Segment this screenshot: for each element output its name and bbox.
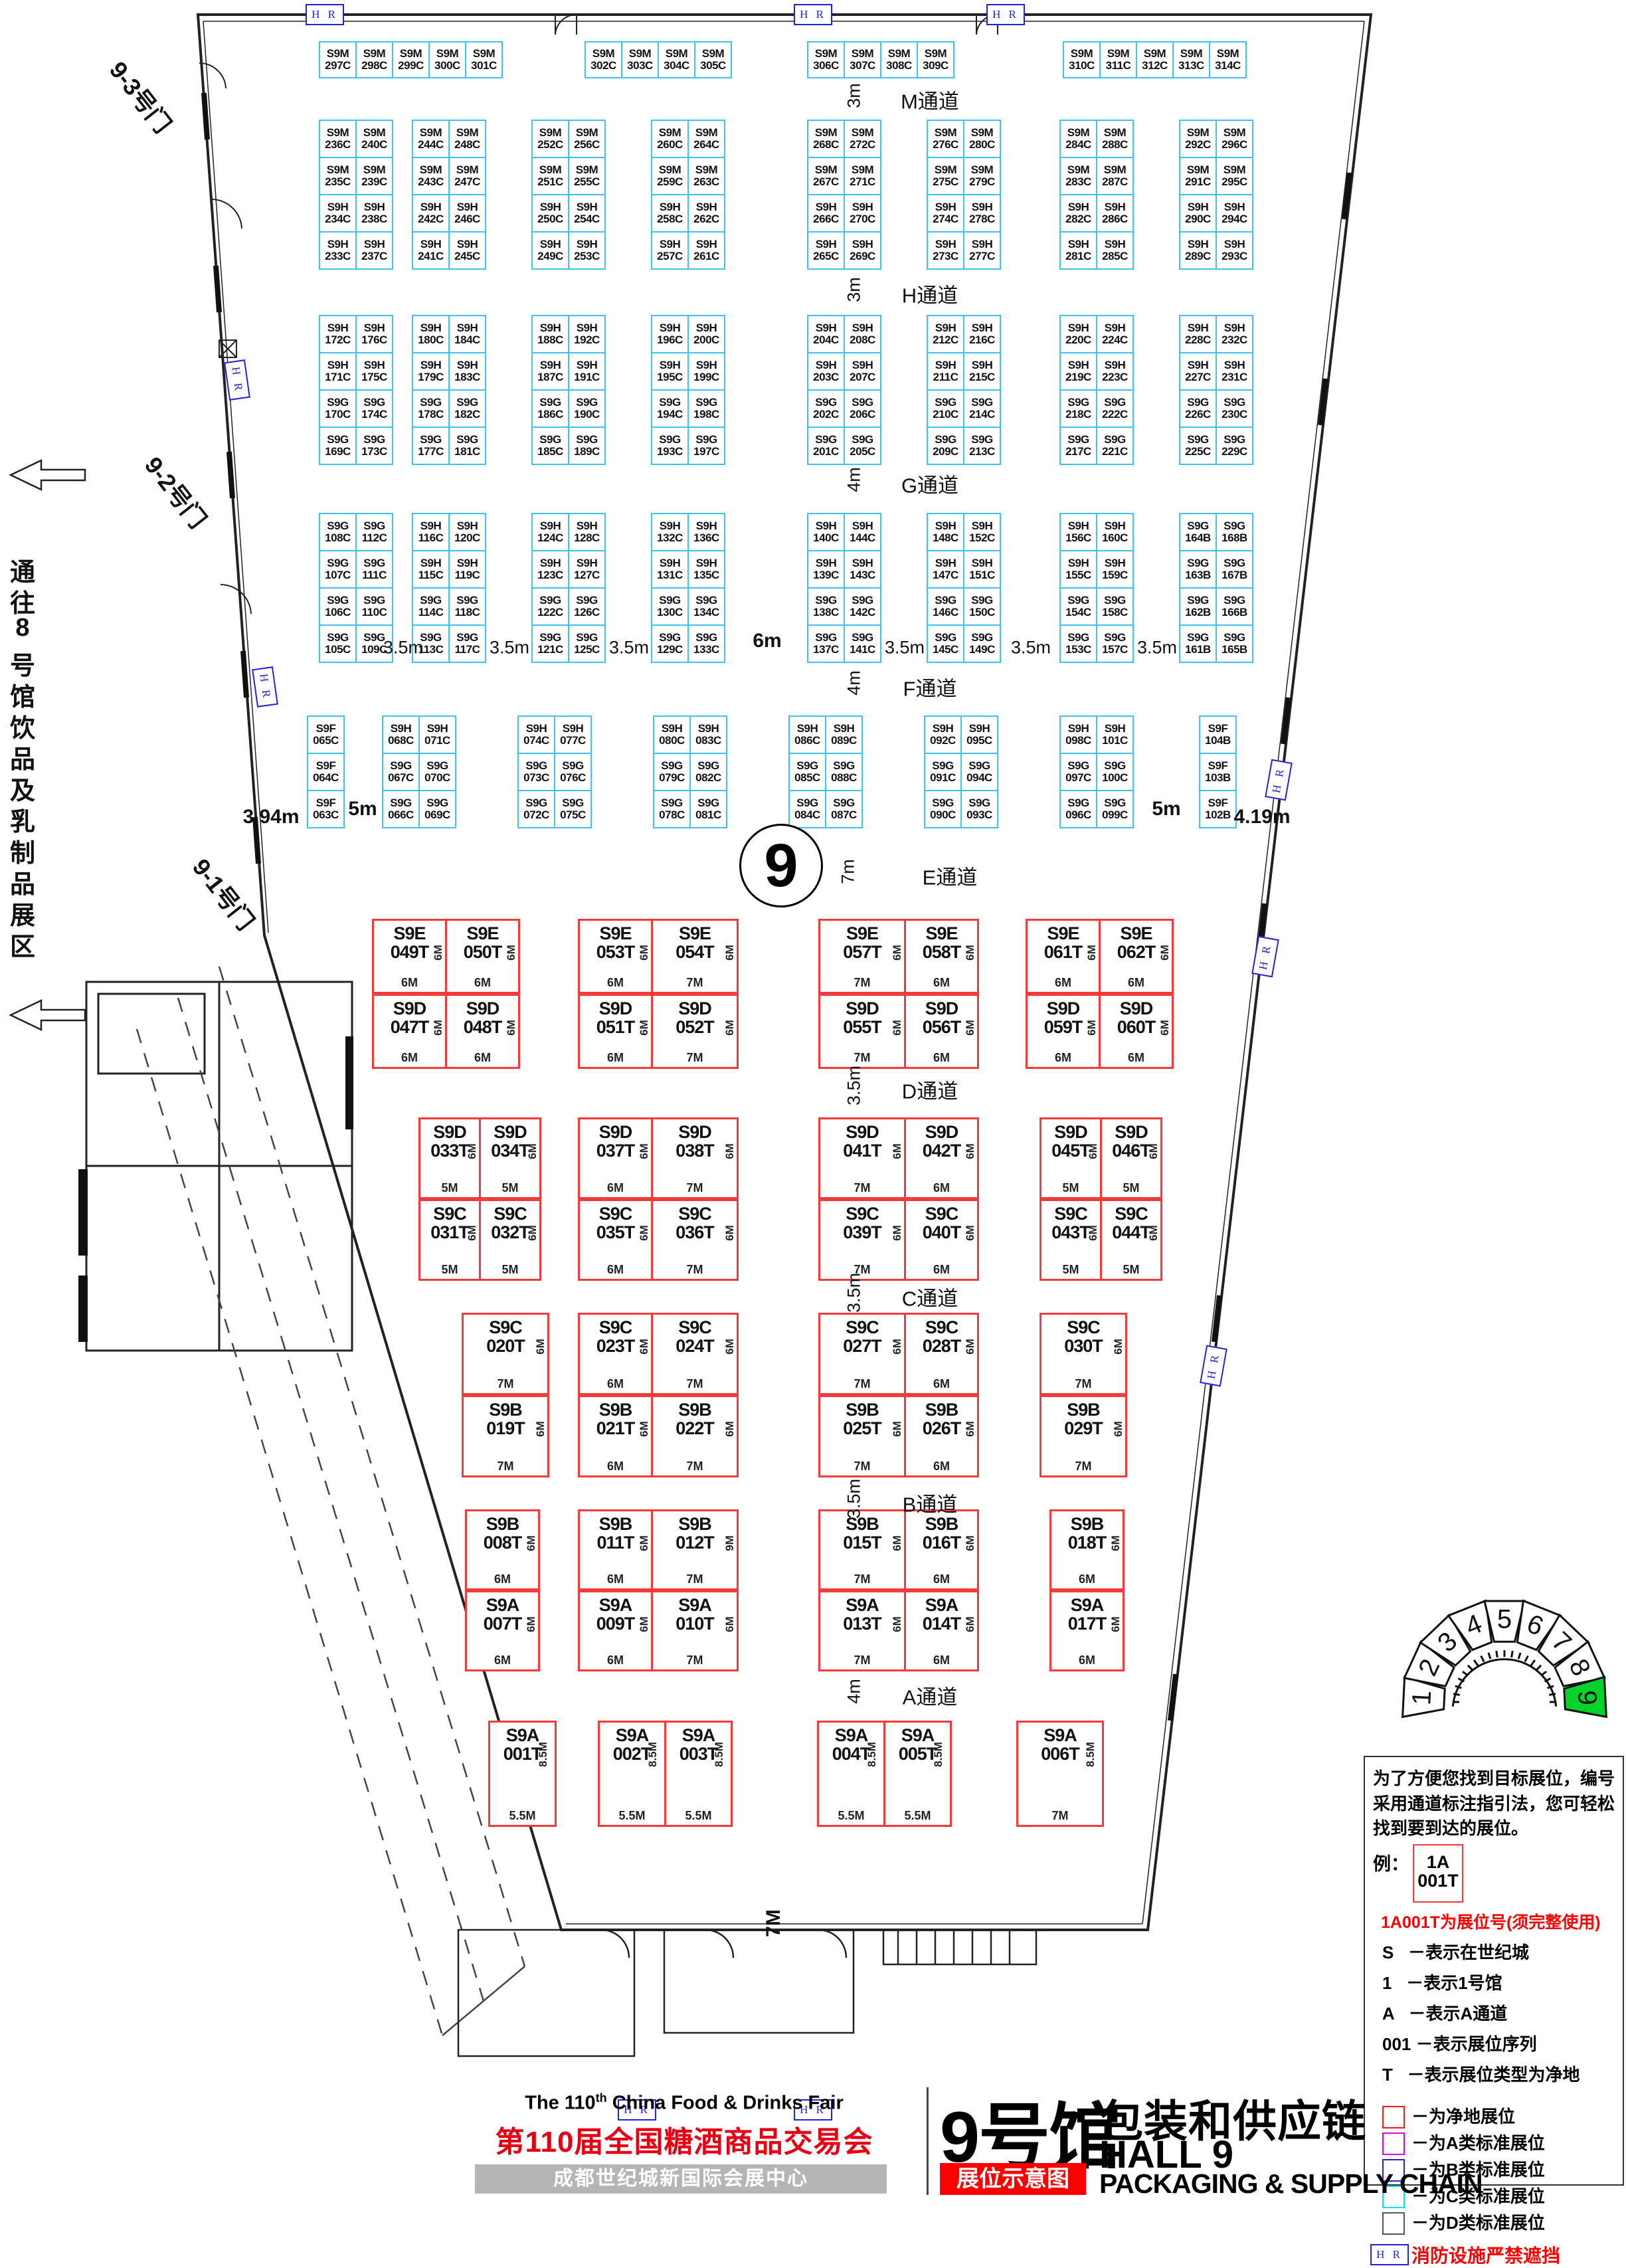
booth[interactable]: S9H180C bbox=[412, 315, 450, 353]
booth[interactable]: S9G067C bbox=[382, 753, 420, 791]
booth[interactable]: S9G087C bbox=[825, 790, 863, 828]
booth[interactable]: S9M312C bbox=[1136, 41, 1174, 78]
booth[interactable]: S9A009T6M6M bbox=[578, 1590, 653, 1671]
booth[interactable]: S9G142C bbox=[844, 587, 881, 626]
booth[interactable]: S9D045T6M5M bbox=[1039, 1117, 1102, 1199]
booth[interactable]: S9H262C bbox=[687, 194, 725, 233]
booth[interactable]: S9G189C bbox=[568, 426, 606, 465]
booth[interactable]: S9F064C bbox=[307, 753, 345, 791]
booth[interactable]: S9H257C bbox=[651, 231, 689, 270]
booth[interactable]: S9H074C bbox=[517, 715, 555, 754]
booth[interactable]: S9D059T6M6M bbox=[1026, 994, 1101, 1069]
booth[interactable]: S9M296C bbox=[1216, 120, 1253, 158]
booth[interactable]: S9M271C bbox=[844, 157, 881, 195]
booth[interactable]: S9G194C bbox=[651, 389, 689, 428]
booth[interactable]: S9G075C bbox=[554, 790, 592, 828]
booth[interactable]: S9H273C bbox=[927, 231, 964, 270]
booth[interactable]: S9B019T6M7M bbox=[462, 1395, 549, 1477]
booth[interactable]: S9G157C bbox=[1096, 624, 1134, 663]
booth[interactable]: S9G110C bbox=[355, 587, 393, 626]
booth[interactable]: S9H116C bbox=[412, 513, 450, 551]
booth[interactable]: S9H277C bbox=[963, 231, 1001, 270]
booth[interactable]: S9G185C bbox=[531, 426, 569, 465]
booth[interactable]: S9H227C bbox=[1179, 352, 1217, 391]
booth[interactable]: S9H092C bbox=[924, 715, 962, 754]
booth[interactable]: S9M252C bbox=[531, 120, 569, 158]
booth[interactable]: S9M235C bbox=[319, 157, 357, 195]
booth[interactable]: S9H211C bbox=[927, 352, 964, 391]
booth[interactable]: S9G166B bbox=[1216, 587, 1253, 626]
booth[interactable]: S9G178C bbox=[412, 389, 450, 428]
booth[interactable]: S9D052T6M7M bbox=[651, 994, 739, 1069]
booth[interactable]: S9M268C bbox=[807, 120, 845, 158]
booth[interactable]: S9A010T6M7M bbox=[651, 1590, 739, 1671]
booth[interactable]: S9H148C bbox=[927, 513, 964, 551]
booth[interactable]: S9H270C bbox=[844, 194, 881, 233]
booth[interactable]: S9G230C bbox=[1216, 389, 1253, 428]
booth[interactable]: S9M264C bbox=[687, 120, 725, 158]
booth[interactable]: S9M307C bbox=[844, 41, 881, 78]
booth[interactable]: S9M239C bbox=[355, 157, 393, 195]
booth[interactable]: S9H212C bbox=[927, 315, 964, 353]
booth[interactable]: S9H151C bbox=[963, 550, 1001, 589]
booth[interactable]: S9H241C bbox=[412, 231, 450, 270]
booth[interactable]: S9G125C bbox=[568, 624, 606, 663]
booth[interactable]: S9H246C bbox=[448, 194, 486, 233]
booth[interactable]: S9G222C bbox=[1096, 389, 1134, 428]
booth[interactable]: S9G221C bbox=[1096, 426, 1134, 465]
booth[interactable]: S9H184C bbox=[448, 315, 486, 353]
booth[interactable]: S9M244C bbox=[412, 120, 450, 158]
booth[interactable]: S9G114C bbox=[412, 587, 450, 626]
booth[interactable]: S9G190C bbox=[568, 389, 606, 428]
booth[interactable]: S9H249C bbox=[531, 231, 569, 270]
booth[interactable]: S9G138C bbox=[807, 587, 845, 626]
booth[interactable]: S9G129C bbox=[651, 624, 689, 663]
booth[interactable]: S9H208C bbox=[844, 315, 881, 353]
booth[interactable]: S9G078C bbox=[653, 790, 691, 828]
booth[interactable]: S9G106C bbox=[319, 587, 357, 626]
booth[interactable]: S9M284C bbox=[1059, 120, 1097, 158]
booth[interactable]: S9A004T8.5M5.5M bbox=[817, 1721, 885, 1827]
booth[interactable]: S9H200C bbox=[687, 315, 725, 353]
booth[interactable]: S9H215C bbox=[963, 352, 1001, 391]
booth[interactable]: S9M275C bbox=[927, 157, 964, 195]
booth[interactable]: S9H269C bbox=[844, 231, 881, 270]
booth[interactable]: S9M297C bbox=[319, 41, 357, 78]
booth[interactable]: S9B012T9M7M bbox=[651, 1509, 739, 1590]
booth[interactable]: S9M303C bbox=[621, 41, 659, 78]
booth[interactable]: S9D041T6M7M bbox=[818, 1117, 906, 1199]
booth[interactable]: S9H220C bbox=[1059, 315, 1097, 353]
booth[interactable]: S9E050T6M6M bbox=[445, 919, 520, 994]
booth[interactable]: S9A005T8.5M5.5M bbox=[883, 1721, 952, 1827]
booth[interactable]: S9M279C bbox=[963, 157, 1001, 195]
booth[interactable]: S9M251C bbox=[531, 157, 569, 195]
booth[interactable]: S9M298C bbox=[355, 41, 393, 78]
booth[interactable]: S9G134C bbox=[687, 587, 725, 626]
booth[interactable]: S9H098C bbox=[1059, 715, 1097, 754]
booth[interactable]: S9M309C bbox=[917, 41, 954, 78]
booth[interactable]: S9G145C bbox=[927, 624, 964, 663]
booth[interactable]: S9G099C bbox=[1096, 790, 1134, 828]
booth[interactable]: S9H143C bbox=[844, 550, 881, 589]
booth[interactable]: S9G170C bbox=[319, 389, 357, 428]
booth[interactable]: S9H192C bbox=[568, 315, 606, 353]
booth[interactable]: S9H080C bbox=[653, 715, 691, 754]
booth[interactable]: S9H203C bbox=[807, 352, 845, 391]
booth[interactable]: S9H285C bbox=[1096, 231, 1134, 270]
booth[interactable]: S9G085C bbox=[788, 753, 826, 791]
booth[interactable]: S9M247C bbox=[448, 157, 486, 195]
booth[interactable]: S9B011T6M6M bbox=[578, 1509, 653, 1590]
booth[interactable]: S9G218C bbox=[1059, 389, 1097, 428]
booth[interactable]: S9G118C bbox=[448, 587, 486, 626]
booth[interactable]: S9G202C bbox=[807, 389, 845, 428]
booth[interactable]: S9G070C bbox=[418, 753, 456, 791]
booth[interactable]: S9H183C bbox=[448, 352, 486, 391]
booth[interactable]: S9M243C bbox=[412, 157, 450, 195]
booth[interactable]: S9G133C bbox=[687, 624, 725, 663]
booth[interactable]: S9D048T6M6M bbox=[445, 994, 520, 1069]
booth[interactable]: S9E058T6M6M bbox=[904, 919, 979, 994]
booth[interactable]: S9H124C bbox=[531, 513, 569, 551]
booth[interactable]: S9G169C bbox=[319, 426, 357, 465]
booth[interactable]: S9H196C bbox=[651, 315, 689, 353]
booth[interactable]: S9A002T8.5M5.5M bbox=[598, 1721, 666, 1827]
booth[interactable]: S9M240C bbox=[355, 120, 393, 158]
booth[interactable]: S9H233C bbox=[319, 231, 357, 270]
booth[interactable]: S9H245C bbox=[448, 231, 486, 270]
booth[interactable]: S9G217C bbox=[1059, 426, 1097, 465]
booth[interactable]: S9G165B bbox=[1216, 624, 1253, 663]
booth[interactable]: S9G112C bbox=[355, 513, 393, 551]
booth[interactable]: S9M280C bbox=[963, 120, 1001, 158]
booth[interactable]: S9G094C bbox=[960, 753, 998, 791]
booth[interactable]: S9C036T6M7M bbox=[651, 1199, 739, 1281]
booth[interactable]: S9G150C bbox=[963, 587, 1001, 626]
booth[interactable]: S9G201C bbox=[807, 426, 845, 465]
booth[interactable]: S9H135C bbox=[687, 550, 725, 589]
booth[interactable]: S9G084C bbox=[788, 790, 826, 828]
booth[interactable]: S9G193C bbox=[651, 426, 689, 465]
booth[interactable]: S9H128C bbox=[568, 513, 606, 551]
booth[interactable]: S9B022T6M7M bbox=[651, 1395, 739, 1477]
booth[interactable]: S9H127C bbox=[568, 550, 606, 589]
booth[interactable]: S9G122C bbox=[531, 587, 569, 626]
booth[interactable]: S9H139C bbox=[807, 550, 845, 589]
booth[interactable]: S9G210C bbox=[927, 389, 964, 428]
booth[interactable]: S9G149C bbox=[963, 624, 1001, 663]
booth[interactable]: S9M306C bbox=[807, 41, 845, 78]
booth[interactable]: S9E061T6M6M bbox=[1026, 919, 1101, 994]
booth[interactable]: S9H195C bbox=[651, 352, 689, 391]
booth[interactable]: S9H086C bbox=[788, 715, 826, 754]
booth[interactable]: S9M259C bbox=[651, 157, 689, 195]
booth[interactable]: S9H234C bbox=[319, 194, 357, 233]
booth[interactable]: S9G154C bbox=[1059, 587, 1097, 626]
booth[interactable]: S9H089C bbox=[825, 715, 863, 754]
booth[interactable]: S9H071C bbox=[418, 715, 456, 754]
booth[interactable]: S9H219C bbox=[1059, 352, 1097, 391]
booth[interactable]: S9G213C bbox=[963, 426, 1001, 465]
booth[interactable]: S9H160C bbox=[1096, 513, 1134, 551]
booth[interactable]: S9H144C bbox=[844, 513, 881, 551]
booth[interactable]: S9M255C bbox=[568, 157, 606, 195]
booth[interactable]: S9G168B bbox=[1216, 513, 1253, 551]
booth[interactable]: S9G082C bbox=[689, 753, 727, 791]
booth[interactable]: S9H115C bbox=[412, 550, 450, 589]
booth[interactable]: S9G229C bbox=[1216, 426, 1253, 465]
booth[interactable]: S9H207C bbox=[844, 352, 881, 391]
booth[interactable]: S9C030T6M7M bbox=[1039, 1313, 1127, 1395]
booth[interactable]: S9C024T6M7M bbox=[651, 1313, 739, 1395]
booth[interactable]: S9H237C bbox=[355, 231, 393, 270]
booth[interactable]: S9M311C bbox=[1099, 41, 1137, 78]
booth[interactable]: S9G181C bbox=[448, 426, 486, 465]
booth[interactable]: S9M276C bbox=[927, 120, 964, 158]
booth[interactable]: S9D055T6M7M bbox=[818, 994, 906, 1069]
booth[interactable]: S9H282C bbox=[1059, 194, 1097, 233]
booth[interactable]: S9B015T6M7M bbox=[818, 1509, 906, 1590]
booth[interactable]: S9G197C bbox=[687, 426, 725, 465]
booth[interactable]: S9C039T6M7M bbox=[818, 1199, 906, 1281]
booth[interactable]: S9H223C bbox=[1096, 352, 1134, 391]
booth[interactable]: S9G126C bbox=[568, 587, 606, 626]
booth[interactable]: S9E049T6M6M bbox=[372, 919, 447, 994]
booth[interactable]: S9H199C bbox=[687, 352, 725, 391]
booth[interactable]: S9M313C bbox=[1172, 41, 1210, 78]
booth[interactable]: S9C023T6M6M bbox=[578, 1313, 653, 1395]
booth[interactable]: S9G186C bbox=[531, 389, 569, 428]
booth[interactable]: S9B029T6M7M bbox=[1039, 1395, 1127, 1477]
booth[interactable]: S9H123C bbox=[531, 550, 569, 589]
booth[interactable]: S9B025T6M7M bbox=[818, 1395, 906, 1477]
booth[interactable]: S9B018T6M6M bbox=[1049, 1509, 1125, 1590]
booth[interactable]: S9H176C bbox=[355, 315, 393, 353]
booth[interactable]: S9G177C bbox=[412, 426, 450, 465]
booth[interactable]: S9G162B bbox=[1179, 587, 1217, 626]
booth[interactable]: S9G097C bbox=[1059, 753, 1097, 791]
booth[interactable]: S9A013T6M7M bbox=[818, 1590, 906, 1671]
booth[interactable]: S9G081C bbox=[689, 790, 727, 828]
booth[interactable]: S9H224C bbox=[1096, 315, 1134, 353]
booth[interactable]: S9M248C bbox=[448, 120, 486, 158]
booth[interactable]: S9H132C bbox=[651, 513, 689, 551]
booth[interactable]: S9H172C bbox=[319, 315, 357, 353]
booth[interactable]: S9H228C bbox=[1179, 315, 1217, 353]
booth[interactable]: S9H254C bbox=[568, 194, 606, 233]
booth[interactable]: S9G108C bbox=[319, 513, 357, 551]
booth[interactable]: S9B016T6M6M bbox=[904, 1509, 979, 1590]
booth[interactable]: S9D056T6M6M bbox=[904, 994, 979, 1069]
booth[interactable]: S9F103B bbox=[1199, 753, 1237, 791]
booth[interactable]: S9D051T6M6M bbox=[578, 994, 653, 1069]
booth[interactable]: S9H179C bbox=[412, 352, 450, 391]
booth[interactable]: S9A017T6M6M bbox=[1049, 1590, 1125, 1671]
booth[interactable]: S9A003T8.5M5.5M bbox=[664, 1721, 733, 1827]
booth[interactable]: S9G158C bbox=[1096, 587, 1134, 626]
booth[interactable]: S9M287C bbox=[1096, 157, 1134, 195]
booth[interactable]: S9G141C bbox=[844, 624, 881, 663]
booth[interactable]: S9G137C bbox=[807, 624, 845, 663]
booth[interactable]: S9G079C bbox=[653, 753, 691, 791]
booth[interactable]: S9G163B bbox=[1179, 550, 1217, 589]
booth[interactable]: S9M236C bbox=[319, 120, 357, 158]
booth[interactable]: S9G225C bbox=[1179, 426, 1217, 465]
booth[interactable]: S9G182C bbox=[448, 389, 486, 428]
booth[interactable]: S9M263C bbox=[687, 157, 725, 195]
booth[interactable]: S9H171C bbox=[319, 352, 357, 391]
booth[interactable]: S9D037T6M6M bbox=[578, 1117, 653, 1199]
booth[interactable]: S9G161B bbox=[1179, 624, 1217, 663]
booth[interactable]: S9H077C bbox=[554, 715, 592, 754]
booth[interactable]: S9D060T6M6M bbox=[1099, 994, 1174, 1069]
booth[interactable]: S9H289C bbox=[1179, 231, 1217, 270]
booth[interactable]: S9H152C bbox=[963, 513, 1001, 551]
booth[interactable]: S9M314C bbox=[1209, 41, 1247, 78]
booth[interactable]: S9C040T6M6M bbox=[904, 1199, 979, 1281]
booth[interactable]: S9A014T6M6M bbox=[904, 1590, 979, 1671]
booth[interactable]: S9G100C bbox=[1096, 753, 1134, 791]
booth[interactable]: S9C031T6M5M bbox=[418, 1199, 481, 1281]
booth[interactable]: S9M288C bbox=[1096, 120, 1134, 158]
booth[interactable]: S9H261C bbox=[687, 231, 725, 270]
booth[interactable]: S9H191C bbox=[568, 352, 606, 391]
booth[interactable]: S9H278C bbox=[963, 194, 1001, 233]
booth[interactable]: S9C043T6M5M bbox=[1039, 1199, 1102, 1281]
booth[interactable]: S9G096C bbox=[1059, 790, 1097, 828]
booth[interactable]: S9G117C bbox=[448, 624, 486, 663]
booth[interactable]: S9H175C bbox=[355, 352, 393, 391]
booth[interactable]: S9A006T8.5M7M bbox=[1016, 1721, 1104, 1827]
booth[interactable]: S9H187C bbox=[531, 352, 569, 391]
booth[interactable]: S9C044T6M5M bbox=[1100, 1199, 1162, 1281]
booth[interactable]: S9H159C bbox=[1096, 550, 1134, 589]
booth[interactable]: S9H156C bbox=[1059, 513, 1097, 551]
booth[interactable]: S9H155C bbox=[1059, 550, 1097, 589]
booth[interactable]: S9A001T8.5M5.5M bbox=[488, 1721, 557, 1827]
booth[interactable]: S9D033T6M5M bbox=[418, 1117, 481, 1199]
booth[interactable]: S9G090C bbox=[924, 790, 962, 828]
booth[interactable]: S9H232C bbox=[1216, 315, 1253, 353]
booth[interactable]: S9M283C bbox=[1059, 157, 1097, 195]
booth[interactable]: S9H083C bbox=[689, 715, 727, 754]
booth[interactable]: S9C035T6M6M bbox=[578, 1199, 653, 1281]
booth[interactable]: S9G093C bbox=[960, 790, 998, 828]
booth[interactable]: S9G076C bbox=[554, 753, 592, 791]
booth[interactable]: S9H281C bbox=[1059, 231, 1097, 270]
booth[interactable]: S9H120C bbox=[448, 513, 486, 551]
booth[interactable]: S9G214C bbox=[963, 389, 1001, 428]
booth[interactable]: S9H119C bbox=[448, 550, 486, 589]
booth[interactable]: S9H253C bbox=[568, 231, 606, 270]
booth[interactable]: S9G069C bbox=[418, 790, 456, 828]
booth[interactable]: S9E057T6M7M bbox=[818, 919, 906, 994]
booth[interactable]: S9M304C bbox=[658, 41, 695, 78]
booth[interactable]: S9G072C bbox=[517, 790, 555, 828]
booth[interactable]: S9G107C bbox=[319, 550, 357, 589]
booth[interactable]: S9M301C bbox=[465, 41, 503, 78]
booth[interactable]: S9G153C bbox=[1059, 624, 1097, 663]
booth[interactable]: S9G209C bbox=[927, 426, 964, 465]
booth[interactable]: S9M291C bbox=[1179, 157, 1217, 195]
booth[interactable]: S9H095C bbox=[960, 715, 998, 754]
booth[interactable]: S9G121C bbox=[531, 624, 569, 663]
booth[interactable]: S9G073C bbox=[517, 753, 555, 791]
booth[interactable]: S9G091C bbox=[924, 753, 962, 791]
booth[interactable]: S9H250C bbox=[531, 194, 569, 233]
booth[interactable]: S9M302C bbox=[585, 41, 622, 78]
booth[interactable]: S9B008T6M6M bbox=[465, 1509, 540, 1590]
booth[interactable]: S9H101C bbox=[1096, 715, 1134, 754]
booth[interactable]: S9E053T6M6M bbox=[578, 919, 653, 994]
booth[interactable]: S9H274C bbox=[927, 194, 964, 233]
booth[interactable]: S9H238C bbox=[355, 194, 393, 233]
booth[interactable]: S9D046T6M5M bbox=[1100, 1117, 1162, 1199]
booth[interactable]: S9B026T6M6M bbox=[904, 1395, 979, 1477]
booth[interactable]: S9F104B bbox=[1199, 715, 1237, 754]
booth[interactable]: S9H258C bbox=[651, 194, 689, 233]
booth[interactable]: S9C027T6M7M bbox=[818, 1313, 906, 1395]
booth[interactable]: S9G088C bbox=[825, 753, 863, 791]
booth[interactable]: S9D034T6M5M bbox=[479, 1117, 541, 1199]
booth[interactable]: S9H242C bbox=[412, 194, 450, 233]
booth[interactable]: S9M299C bbox=[392, 41, 430, 78]
booth[interactable]: S9G226C bbox=[1179, 389, 1217, 428]
booth[interactable]: S9H290C bbox=[1179, 194, 1217, 233]
booth[interactable]: S9F063C bbox=[307, 790, 345, 828]
booth[interactable]: S9M300C bbox=[428, 41, 466, 78]
booth[interactable]: S9E054T6M7M bbox=[651, 919, 739, 994]
booth[interactable]: S9H068C bbox=[382, 715, 420, 754]
booth[interactable]: S9A007T6M6M bbox=[465, 1590, 540, 1671]
booth[interactable]: S9M295C bbox=[1216, 157, 1253, 195]
booth[interactable]: S9M292C bbox=[1179, 120, 1217, 158]
booth[interactable]: S9G146C bbox=[927, 587, 964, 626]
booth[interactable]: S9H266C bbox=[807, 194, 845, 233]
booth[interactable]: S9G167B bbox=[1216, 550, 1253, 589]
booth[interactable]: S9G111C bbox=[355, 550, 393, 589]
booth[interactable]: S9G173C bbox=[355, 426, 393, 465]
booth[interactable]: S9M256C bbox=[568, 120, 606, 158]
booth[interactable]: S9C032T6M5M bbox=[479, 1199, 541, 1281]
booth[interactable]: S9H136C bbox=[687, 513, 725, 551]
booth[interactable]: S9G105C bbox=[319, 624, 357, 663]
booth[interactable]: S9D047T6M6M bbox=[372, 994, 447, 1069]
booth[interactable]: S9M272C bbox=[844, 120, 881, 158]
booth[interactable]: S9G205C bbox=[844, 426, 881, 465]
booth[interactable]: S9H265C bbox=[807, 231, 845, 270]
booth[interactable]: S9C020T6M7M bbox=[462, 1313, 549, 1395]
booth[interactable]: S9M267C bbox=[807, 157, 845, 195]
booth[interactable]: S9F102B bbox=[1199, 790, 1237, 828]
booth[interactable]: S9M305C bbox=[694, 41, 732, 78]
booth[interactable]: S9D038T6M7M bbox=[651, 1117, 739, 1199]
booth[interactable]: S9H231C bbox=[1216, 352, 1253, 391]
booth[interactable]: S9C028T6M6M bbox=[904, 1313, 979, 1395]
booth[interactable]: S9H204C bbox=[807, 315, 845, 353]
booth[interactable]: S9H147C bbox=[927, 550, 964, 589]
booth[interactable]: S9M308C bbox=[880, 41, 918, 78]
booth[interactable]: S9H131C bbox=[651, 550, 689, 589]
booth[interactable]: S9D042T6M6M bbox=[904, 1117, 979, 1199]
booth[interactable]: S9H293C bbox=[1216, 231, 1253, 270]
booth[interactable]: S9G174C bbox=[355, 389, 393, 428]
booth[interactable]: S9H216C bbox=[963, 315, 1001, 353]
booth[interactable]: S9G066C bbox=[382, 790, 420, 828]
booth[interactable]: S9G164B bbox=[1179, 513, 1217, 551]
